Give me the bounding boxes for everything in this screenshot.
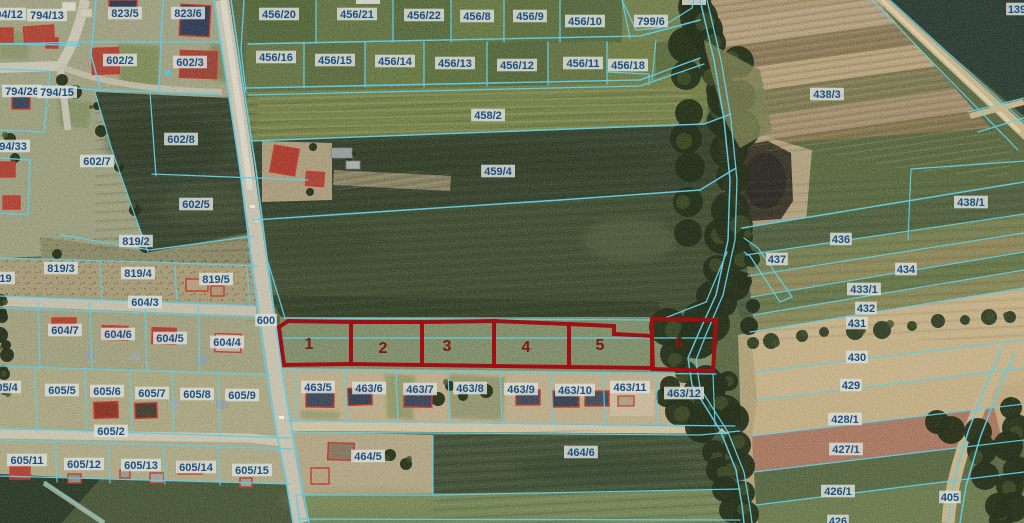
svg-text:429: 429 <box>842 380 860 392</box>
svg-text:794/26: 794/26 <box>5 86 39 98</box>
svg-text:602/5: 602/5 <box>182 199 210 211</box>
svg-text:605/7: 605/7 <box>138 388 166 400</box>
svg-text:139: 139 <box>1008 4 1024 16</box>
svg-text:456/9: 456/9 <box>516 11 544 23</box>
svg-text:794/15: 794/15 <box>40 87 74 99</box>
svg-text:605/14: 605/14 <box>179 462 214 474</box>
svg-text:456/11: 456/11 <box>566 58 599 70</box>
svg-text:463/9: 463/9 <box>507 384 535 396</box>
svg-text:819/4: 819/4 <box>124 268 152 280</box>
svg-text:456/20: 456/20 <box>262 9 296 21</box>
svg-text:794/33: 794/33 <box>0 141 27 153</box>
svg-text:426: 426 <box>829 516 847 523</box>
svg-text:464/5: 464/5 <box>354 451 382 463</box>
svg-text:437: 437 <box>768 254 786 266</box>
svg-text:819/2: 819/2 <box>122 236 150 248</box>
svg-text:456/8: 456/8 <box>463 11 491 23</box>
svg-text:605/4: 605/4 <box>0 382 19 394</box>
svg-text:456/15: 456/15 <box>318 55 352 67</box>
svg-text:604/7: 604/7 <box>51 325 79 337</box>
svg-text:605/6: 605/6 <box>93 386 121 398</box>
svg-text:605/12: 605/12 <box>67 459 101 471</box>
svg-text:430: 430 <box>848 352 866 364</box>
svg-text:456/18: 456/18 <box>611 60 645 72</box>
svg-text:600: 600 <box>257 315 275 327</box>
svg-text:604/6: 604/6 <box>104 329 132 341</box>
svg-text:605/8: 605/8 <box>183 389 211 401</box>
svg-text:436: 436 <box>832 234 850 246</box>
svg-text:794/12: 794/12 <box>0 9 23 21</box>
svg-text:605/15: 605/15 <box>235 465 269 477</box>
svg-text:602/2: 602/2 <box>106 55 134 67</box>
svg-text:463/12: 463/12 <box>667 388 701 400</box>
svg-text:5: 5 <box>596 337 605 354</box>
svg-text:463/6: 463/6 <box>355 383 383 395</box>
svg-text:1: 1 <box>305 336 314 353</box>
svg-text:432: 432 <box>857 303 875 315</box>
svg-text:459/4: 459/4 <box>484 166 512 178</box>
svg-text:433/1: 433/1 <box>850 284 878 296</box>
svg-text:6: 6 <box>675 335 684 352</box>
svg-text:431: 431 <box>848 318 866 330</box>
svg-text:463/11: 463/11 <box>613 382 646 394</box>
svg-text:427/1: 427/1 <box>832 444 860 456</box>
svg-text:456/21: 456/21 <box>340 9 374 21</box>
svg-text:4: 4 <box>522 339 531 356</box>
svg-text:604/4: 604/4 <box>213 337 241 349</box>
svg-text:434: 434 <box>897 264 916 276</box>
svg-text:463/5: 463/5 <box>304 382 332 394</box>
svg-text:456/13: 456/13 <box>438 58 472 70</box>
svg-text:428/1: 428/1 <box>831 414 859 426</box>
svg-text:426/1: 426/1 <box>824 486 852 498</box>
svg-text:/19: /19 <box>0 273 12 285</box>
svg-text:463/7: 463/7 <box>406 384 434 396</box>
svg-text:456/22: 456/22 <box>407 10 441 22</box>
svg-text:823/5: 823/5 <box>111 8 139 20</box>
svg-text:458/2: 458/2 <box>474 110 502 122</box>
svg-text:602/7: 602/7 <box>83 156 111 168</box>
svg-text:405: 405 <box>941 492 959 504</box>
svg-text:819/5: 819/5 <box>202 274 230 286</box>
svg-text:605/5: 605/5 <box>48 385 76 397</box>
svg-text:456/10: 456/10 <box>568 16 602 28</box>
svg-text:463/10: 463/10 <box>558 385 592 397</box>
svg-text:3: 3 <box>443 338 452 355</box>
svg-text:602/3: 602/3 <box>176 57 204 69</box>
svg-text:605/2: 605/2 <box>97 426 125 438</box>
svg-text:605/11: 605/11 <box>10 455 43 467</box>
svg-text:602/8: 602/8 <box>167 134 195 146</box>
svg-text:456/14: 456/14 <box>378 56 413 68</box>
svg-text:463/8: 463/8 <box>456 383 484 395</box>
svg-text:438/1: 438/1 <box>957 197 985 209</box>
svg-text:604/3: 604/3 <box>131 297 159 309</box>
svg-text:819/3: 819/3 <box>47 263 75 275</box>
svg-text:605/9: 605/9 <box>228 390 256 402</box>
svg-text:456/16: 456/16 <box>259 52 293 64</box>
svg-text:605/13: 605/13 <box>124 460 158 472</box>
svg-text:823/6: 823/6 <box>174 8 202 20</box>
svg-text:794/13: 794/13 <box>30 10 64 22</box>
svg-text:2: 2 <box>379 340 388 357</box>
svg-text:604/5: 604/5 <box>156 333 184 345</box>
svg-text:456/12: 456/12 <box>500 60 534 72</box>
svg-text:438/3: 438/3 <box>813 89 841 101</box>
svg-text:464/6: 464/6 <box>567 447 595 459</box>
svg-text:799/6: 799/6 <box>637 16 665 28</box>
